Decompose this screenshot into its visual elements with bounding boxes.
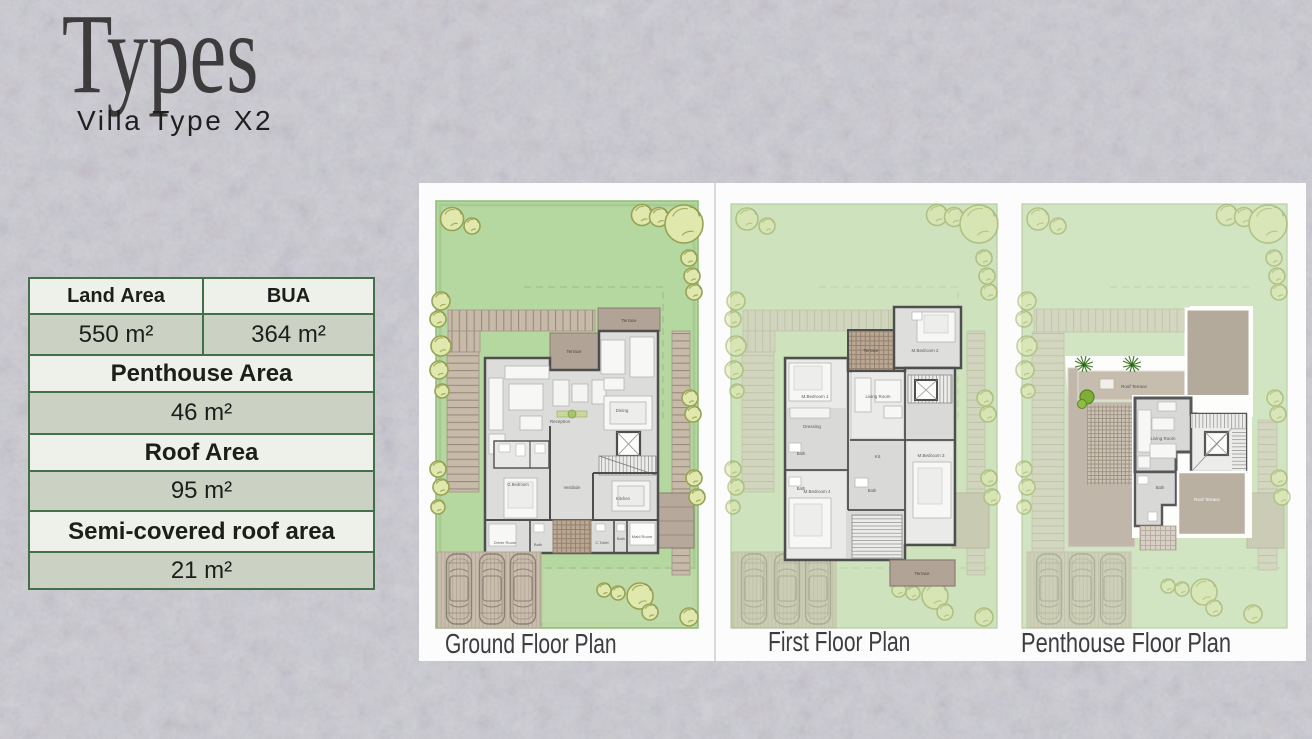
svg-text:Vestibule: Vestibule xyxy=(564,485,582,490)
svg-text:Bath: Bath xyxy=(868,488,877,493)
svg-text:Terrace: Terrace xyxy=(914,571,930,576)
svg-text:M.Bedroom 1: M.Bedroom 1 xyxy=(801,394,829,399)
svg-text:Driver Room: Driver Room xyxy=(494,540,517,545)
svg-text:Maid Room: Maid Room xyxy=(632,534,653,539)
svg-text:M.Bedroom 2: M.Bedroom 2 xyxy=(911,348,939,353)
svg-text:Terrace: Terrace xyxy=(566,349,582,354)
svg-text:Roof Terrace: Roof Terrace xyxy=(1121,384,1147,389)
svg-text:Terrace: Terrace xyxy=(863,348,879,353)
svg-text:Kit.: Kit. xyxy=(875,454,882,459)
svg-text:Terrace: Terrace xyxy=(621,318,637,323)
svg-text:Bath: Bath xyxy=(797,451,806,456)
svg-text:Bath: Bath xyxy=(1156,485,1165,490)
svg-text:G.Bedroom: G.Bedroom xyxy=(507,482,529,487)
svg-text:Dressing: Dressing xyxy=(803,424,821,429)
svg-text:Bath: Bath xyxy=(617,536,625,541)
svg-text:Kitchen: Kitchen xyxy=(616,496,631,501)
svg-text:Reception: Reception xyxy=(550,419,571,424)
svg-text:Types: Types xyxy=(62,0,259,117)
svg-text:M.Bedroom 4: M.Bedroom 4 xyxy=(803,489,831,494)
svg-text:Living Room: Living Room xyxy=(1150,436,1175,441)
svg-text:C.Toilet: C.Toilet xyxy=(595,540,609,545)
svg-text:Living Room: Living Room xyxy=(865,394,890,399)
svg-text:Dining: Dining xyxy=(616,408,629,413)
svg-text:Roof Terrace: Roof Terrace xyxy=(1194,497,1220,502)
svg-text:Bath: Bath xyxy=(534,542,542,547)
svg-text:M.Bedroom 3: M.Bedroom 3 xyxy=(917,453,945,458)
